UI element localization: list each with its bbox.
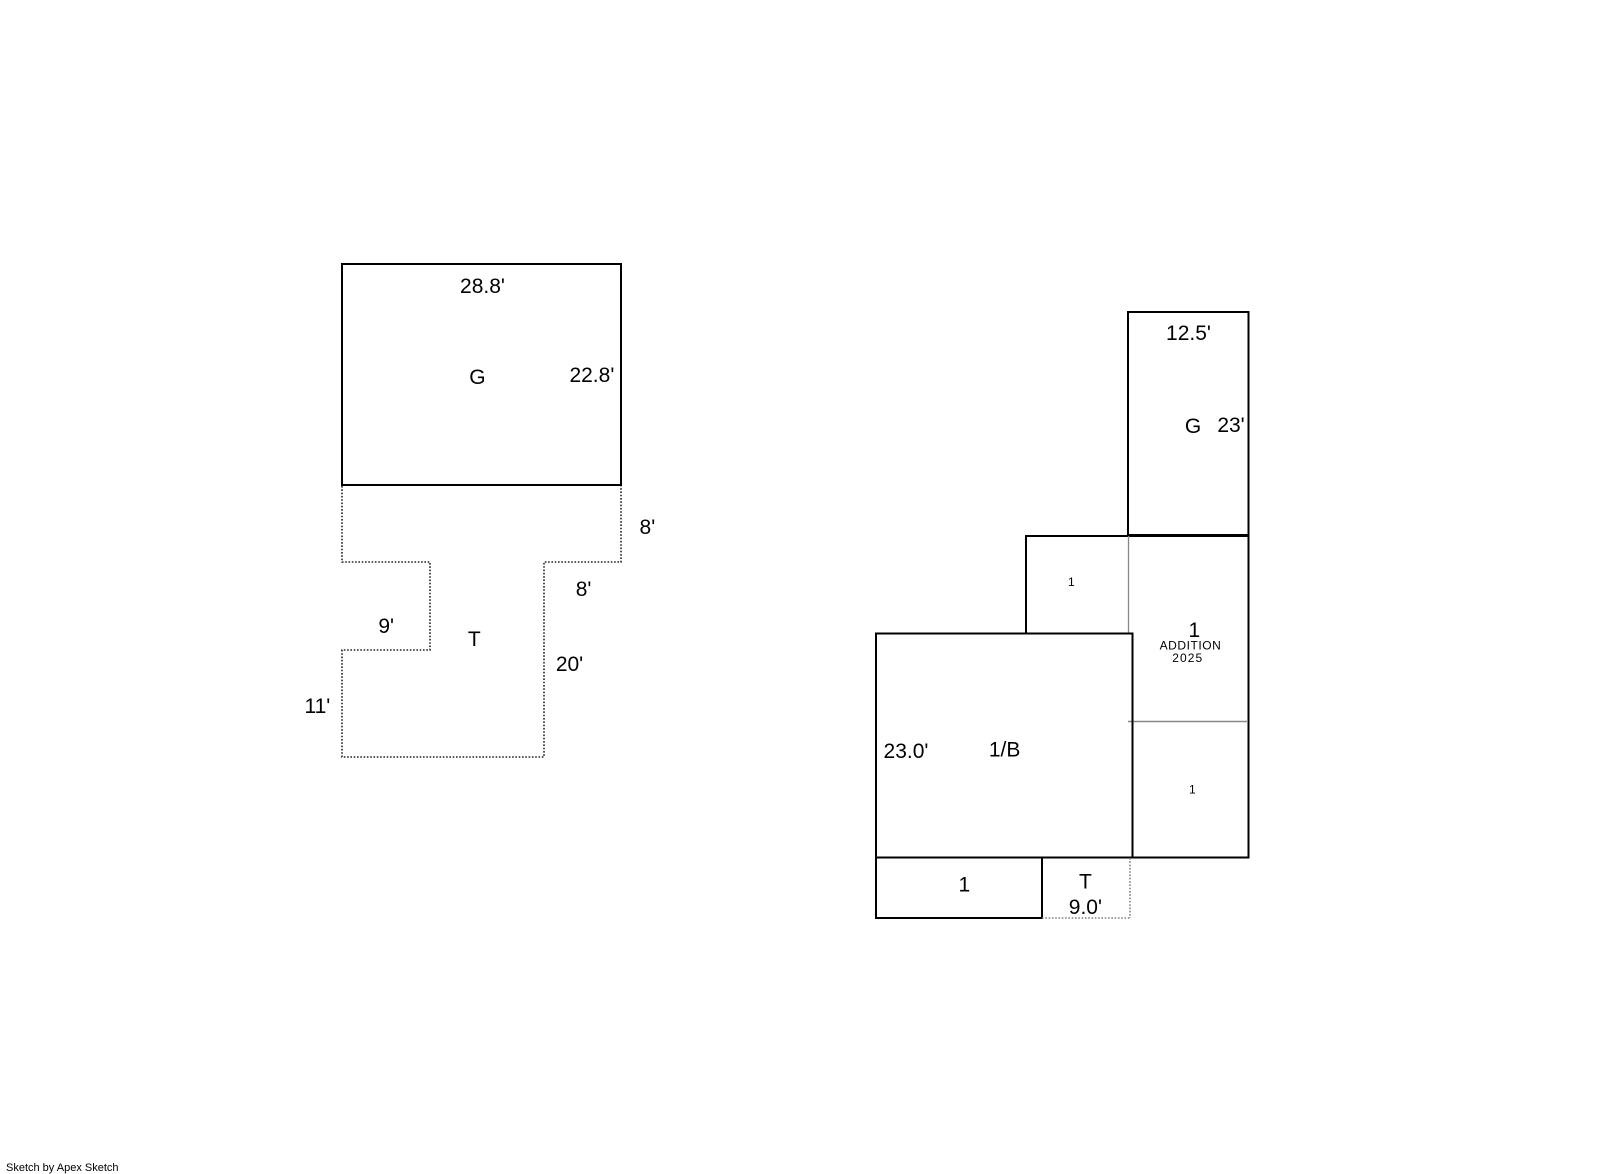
svg-text:G: G [469,366,485,389]
svg-text:1: 1 [959,874,971,897]
svg-text:9': 9' [378,615,394,638]
svg-text:T: T [468,628,481,651]
svg-text:2025: 2025 [1172,651,1203,665]
svg-text:8': 8' [576,578,592,601]
svg-text:9.0': 9.0' [1069,896,1102,919]
svg-text:22.8': 22.8' [569,364,614,387]
svg-text:23.0': 23.0' [884,740,929,763]
svg-text:Sketch by Apex Sketch: Sketch by Apex Sketch [6,1162,119,1174]
svg-text:1: 1 [1068,575,1075,589]
svg-text:23': 23' [1217,414,1244,437]
svg-text:28.8': 28.8' [460,275,505,298]
svg-text:20': 20' [556,653,583,676]
svg-text:12.5': 12.5' [1166,322,1211,345]
svg-text:11': 11' [304,695,330,718]
svg-text:8': 8' [640,516,656,539]
svg-text:1: 1 [1189,782,1196,796]
svg-text:G: G [1185,415,1201,438]
svg-text:T: T [1079,870,1092,893]
svg-text:1/B: 1/B [989,739,1021,762]
